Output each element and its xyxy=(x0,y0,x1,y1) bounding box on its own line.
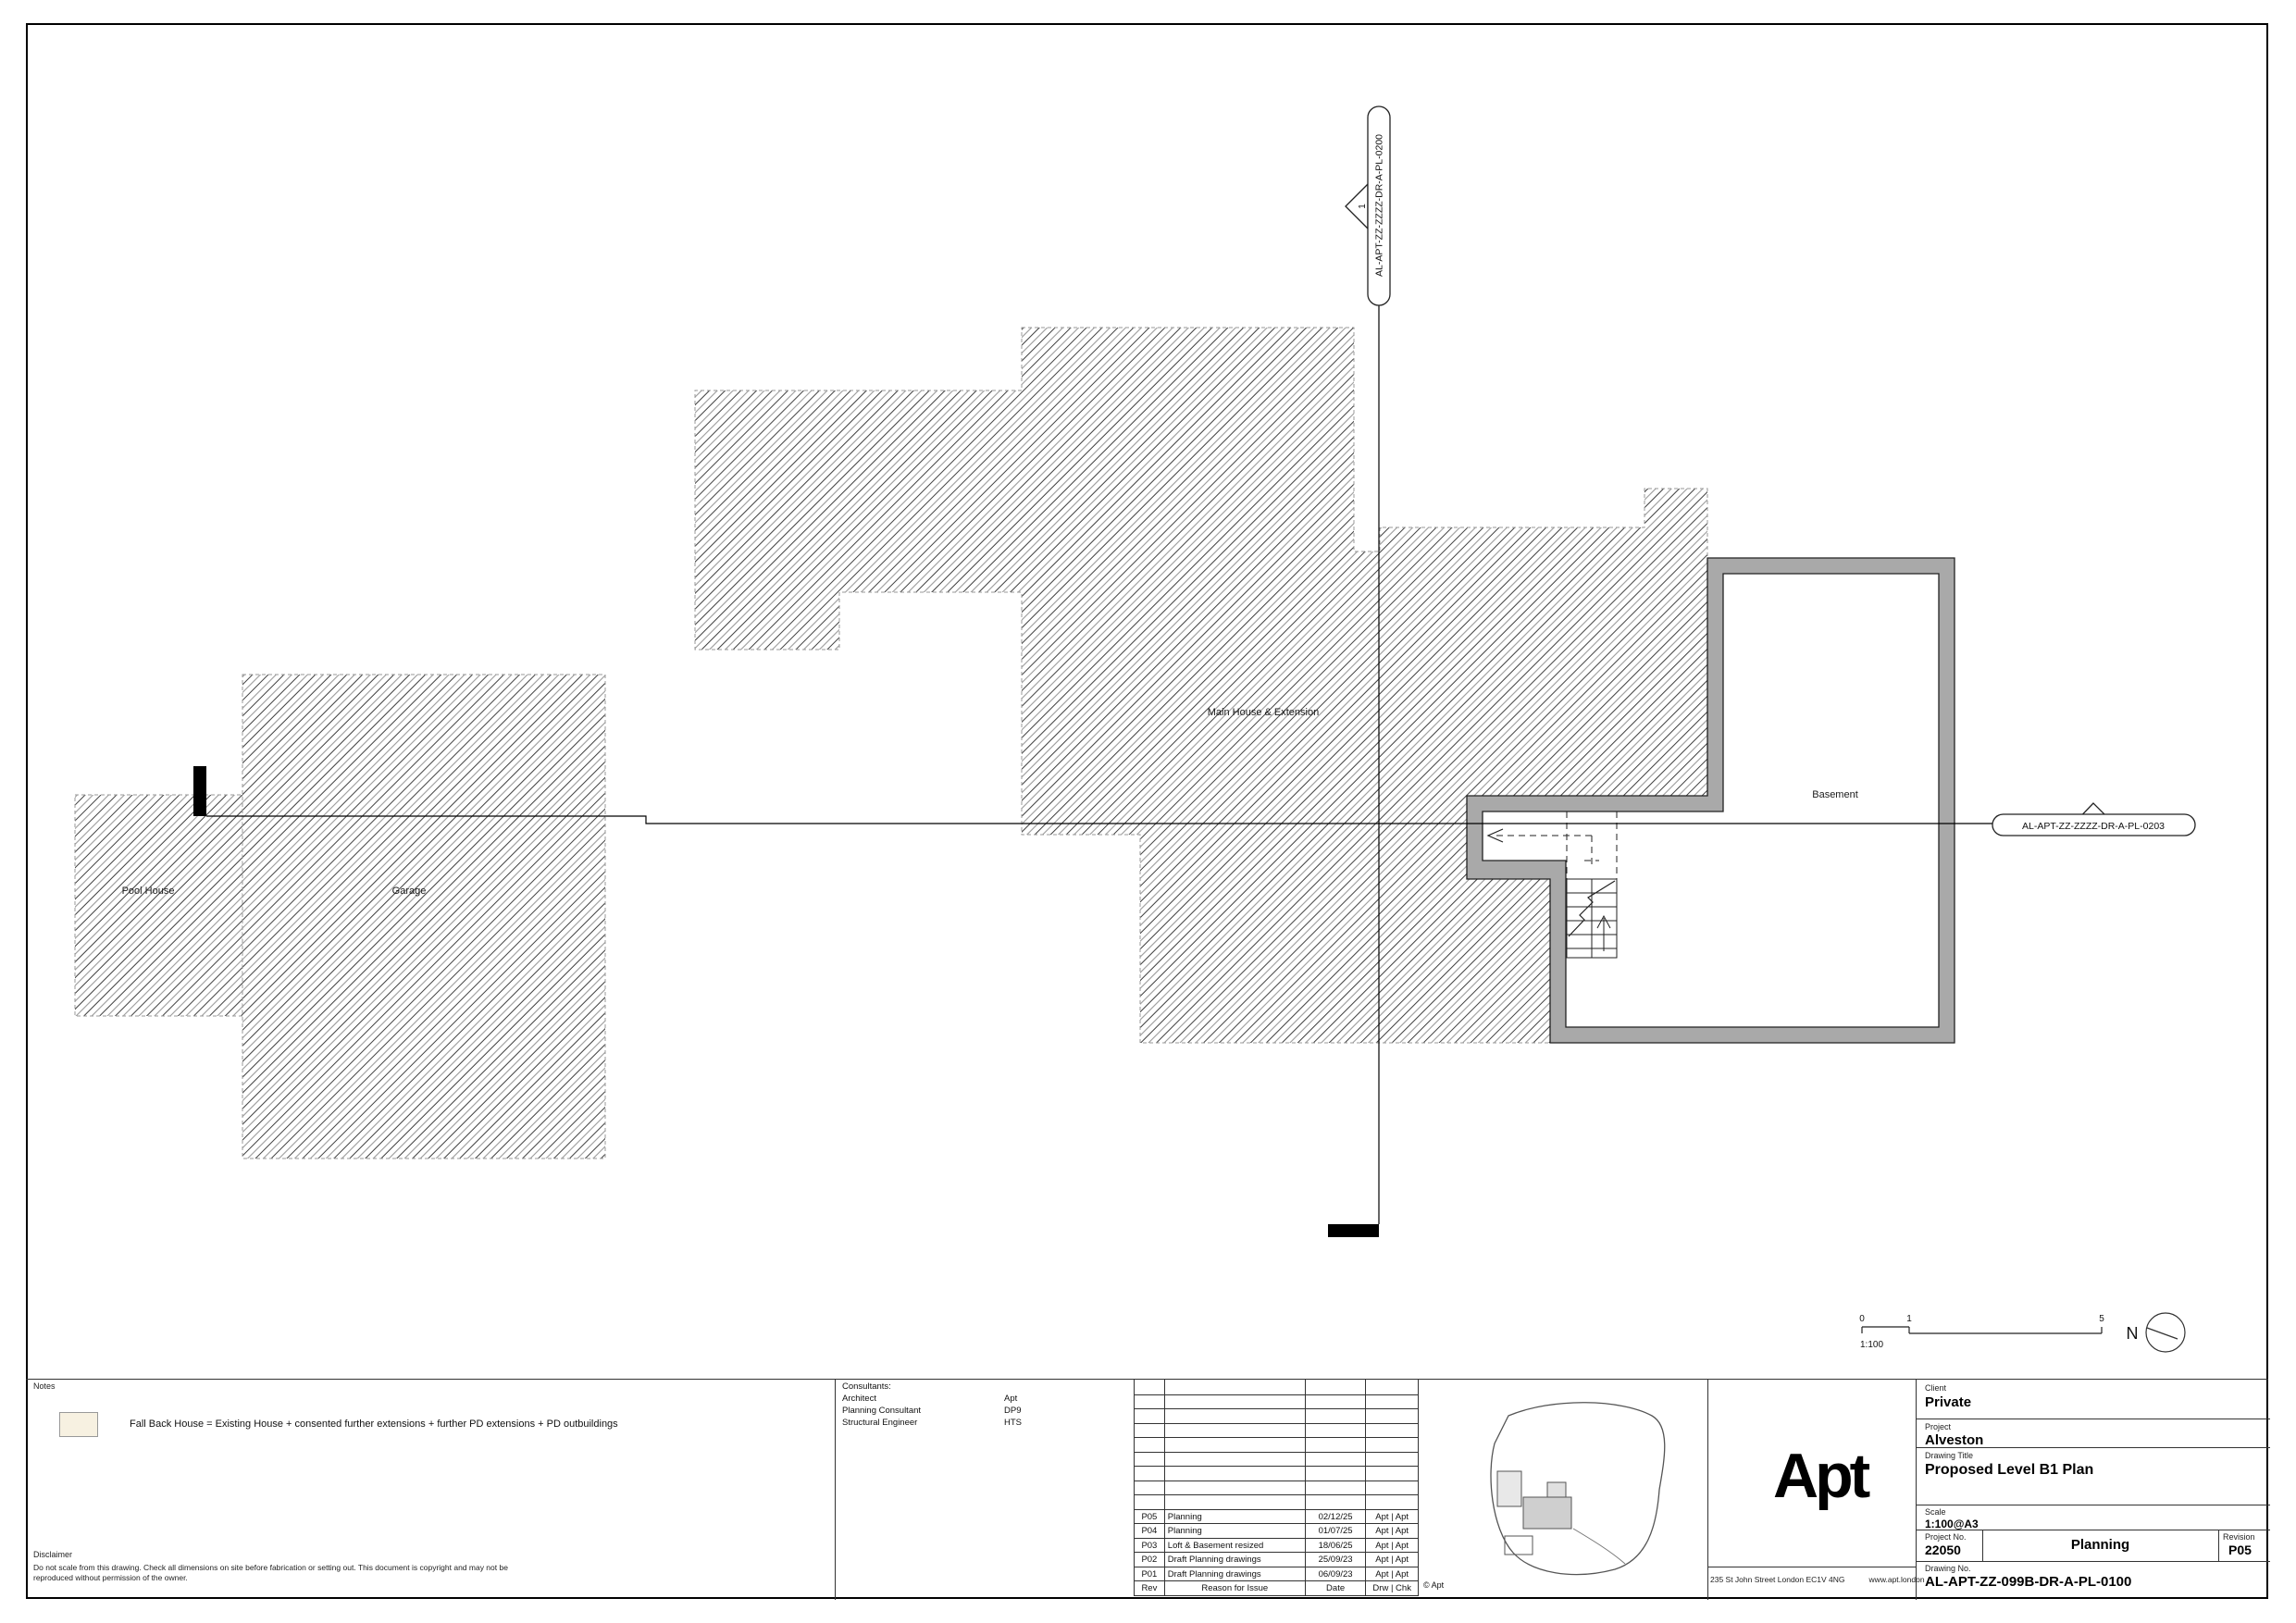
scale-bar xyxy=(1862,1327,2102,1333)
copyright-note: © Apt xyxy=(1423,1580,1444,1590)
revision-empty-row xyxy=(1135,1494,1418,1509)
revision-table: P05 Planning 02/12/25 Apt | Apt P04 Plan… xyxy=(1134,1379,1419,1596)
revision-date: 01/07/25 xyxy=(1306,1523,1367,1538)
project-no-value: 22050 xyxy=(1925,1542,1961,1557)
drawing-no-value: AL-APT-ZZ-099B-DR-A-PL-0100 xyxy=(1925,1574,2131,1590)
consultant-name: HTS xyxy=(1004,1418,1022,1428)
consultant-name: Apt xyxy=(1004,1394,1017,1404)
revision-date: 06/09/23 xyxy=(1306,1567,1367,1581)
north-arrow-label: N xyxy=(2127,1324,2139,1343)
consultants-title: Consultants: xyxy=(842,1381,891,1392)
section-marker-right-ref: AL-APT-ZZ-ZZZZ-DR-A-PL-0203 xyxy=(2022,821,2165,832)
pool-house-label: Pool House xyxy=(122,886,175,897)
client-value: Private xyxy=(1925,1394,1971,1410)
scale-bar-tick5: 5 xyxy=(2099,1314,2104,1324)
scale-bar-ratio: 1:100 xyxy=(1860,1340,1883,1350)
drawing-title-label: Drawing Title xyxy=(1925,1451,1973,1460)
revision-date: 25/09/23 xyxy=(1306,1552,1367,1567)
site-path xyxy=(1573,1529,1625,1564)
revision-empty-row xyxy=(1135,1423,1418,1438)
apt-logo: Apt xyxy=(1773,1440,1867,1512)
revision-rev: P04 xyxy=(1135,1523,1165,1538)
revision-row: P03 Loft & Basement resized 18/06/25 Apt… xyxy=(1135,1538,1418,1553)
site-building-2 xyxy=(1547,1482,1566,1497)
revision-reason: Loft & Basement resized xyxy=(1165,1538,1306,1553)
revision-header-drwchk: Drw | Chk xyxy=(1366,1580,1418,1595)
project-label: Project xyxy=(1925,1422,1951,1431)
site-plan-thumbnail xyxy=(1444,1386,1703,1599)
section-line-bottom-mark xyxy=(1328,1224,1379,1237)
revision-empty-row xyxy=(1135,1408,1418,1423)
disclaimer-title: Disclaimer xyxy=(33,1550,72,1559)
divider-logo-titleblock xyxy=(1916,1379,1917,1600)
revision-drwchk: Apt | Apt xyxy=(1366,1567,1418,1581)
address-row: 235 St John Street London EC1V 4NG www.a… xyxy=(1710,1575,1925,1584)
north-arrow: N xyxy=(2127,1313,2186,1352)
divider-notes-consultants xyxy=(835,1379,836,1600)
revision-empty-row xyxy=(1135,1466,1418,1481)
titleblock-line-3 xyxy=(1916,1505,2270,1505)
revision-reason: Planning xyxy=(1165,1509,1306,1524)
revision-row: P05 Planning 02/12/25 Apt | Apt xyxy=(1135,1509,1418,1524)
section-marker-right: 1 AL-APT-ZZ-ZZZZ-DR-A-PL-0203 xyxy=(1992,803,2195,836)
revision-reason: Draft Planning drawings xyxy=(1165,1567,1306,1581)
drawing-no-label: Drawing No. xyxy=(1925,1564,1971,1573)
revision-drwchk: Apt | Apt xyxy=(1366,1509,1418,1524)
disclaimer-text: Do not scale from this drawing. Check al… xyxy=(33,1563,540,1583)
revision-drwchk: Apt | Apt xyxy=(1366,1552,1418,1567)
notes-title: Notes xyxy=(33,1381,56,1391)
revision-drwchk: Apt | Apt xyxy=(1366,1523,1418,1538)
project-value: Alveston xyxy=(1925,1432,1983,1448)
consultant-row: Structural Engineer HTS xyxy=(842,1418,917,1428)
consultant-role: Architect xyxy=(842,1394,876,1404)
revision-date: 18/06/25 xyxy=(1306,1538,1367,1553)
floor-plan-drawing: 1 AL-APT-ZZ-ZZZZ-DR-A-PL-0200 1 AL-APT-Z… xyxy=(0,0,2296,1379)
revision-label: Revision xyxy=(2223,1532,2255,1542)
section-line-left-mark xyxy=(193,766,206,816)
drawing-title-value: Proposed Level B1 Plan xyxy=(1925,1462,2093,1479)
consultant-name: DP9 xyxy=(1004,1406,1021,1416)
titleblock-vline-2 xyxy=(2218,1530,2219,1561)
scale-bar-tick1: 1 xyxy=(1906,1314,1912,1324)
status-value: Planning xyxy=(1982,1537,2218,1553)
revision-empty-row xyxy=(1135,1481,1418,1495)
studio-website: www.apt.london xyxy=(1869,1575,1925,1584)
client-label: Client xyxy=(1925,1383,1946,1393)
revision-rev: P01 xyxy=(1135,1567,1165,1581)
revision-drwchk: Apt | Apt xyxy=(1366,1538,1418,1553)
scale-bar-tick0: 0 xyxy=(1859,1314,1865,1324)
studio-address: 235 St John Street London EC1V 4NG xyxy=(1710,1575,1845,1584)
revision-row: P01 Draft Planning drawings 06/09/23 Apt… xyxy=(1135,1567,1418,1581)
basement-label: Basement xyxy=(1812,789,1858,800)
revision-header-row: Rev Reason for Issue Date Drw | Chk xyxy=(1135,1580,1418,1595)
titleblock-line-5 xyxy=(1916,1561,2270,1562)
revision-empty-row xyxy=(1135,1452,1418,1467)
revision-header-rev: Rev xyxy=(1135,1580,1165,1595)
revision-row: P04 Planning 01/07/25 Apt | Apt xyxy=(1135,1523,1418,1538)
project-no-label: Project No. xyxy=(1925,1532,1967,1542)
revision-empty-row xyxy=(1135,1380,1418,1394)
revision-row: P02 Draft Planning drawings 25/09/23 Apt… xyxy=(1135,1552,1418,1567)
revision-rev: P03 xyxy=(1135,1538,1165,1553)
revision-header-reason: Reason for Issue xyxy=(1165,1580,1306,1595)
consultant-role: Planning Consultant xyxy=(842,1406,921,1416)
revision-date: 02/12/25 xyxy=(1306,1509,1367,1524)
section-marker-top: 1 AL-APT-ZZ-ZZZZ-DR-A-PL-0200 xyxy=(1346,106,1390,305)
revision-reason: Draft Planning drawings xyxy=(1165,1552,1306,1567)
consultant-role: Structural Engineer xyxy=(842,1418,917,1428)
revision-empty-row xyxy=(1135,1437,1418,1452)
revision-value: P05 xyxy=(2228,1542,2252,1557)
consultant-row: Planning Consultant DP9 xyxy=(842,1406,921,1416)
fall-back-house-swatch xyxy=(59,1412,98,1437)
site-building-main xyxy=(1523,1497,1571,1529)
revision-reason: Planning xyxy=(1165,1523,1306,1538)
basement-stair xyxy=(1567,879,1617,958)
consultant-row: Architect Apt xyxy=(842,1394,876,1404)
revision-empty-row xyxy=(1135,1394,1418,1409)
address-divider xyxy=(1707,1567,1916,1567)
section-marker-top-number: 1 xyxy=(1358,204,1368,209)
revision-header-date: Date xyxy=(1306,1580,1367,1595)
site-building-1 xyxy=(1497,1471,1521,1506)
fall-back-house-legend: Fall Back House = Existing House + conse… xyxy=(130,1419,618,1430)
section-marker-top-ref: AL-APT-ZZ-ZZZZ-DR-A-PL-0200 xyxy=(1374,134,1385,277)
garage-label: Garage xyxy=(392,886,427,897)
titleblock-line-1 xyxy=(1916,1419,2270,1419)
revision-rev: P05 xyxy=(1135,1509,1165,1524)
garage-footprint xyxy=(242,675,605,1158)
revision-rev: P02 xyxy=(1135,1552,1165,1567)
scale-label: Scale xyxy=(1925,1507,1946,1517)
site-building-3 xyxy=(1505,1536,1533,1555)
pool-house-footprint xyxy=(75,795,242,1016)
scale-value: 1:100@A3 xyxy=(1925,1518,1979,1530)
main-house-label: Main House & Extension xyxy=(1208,707,1319,718)
